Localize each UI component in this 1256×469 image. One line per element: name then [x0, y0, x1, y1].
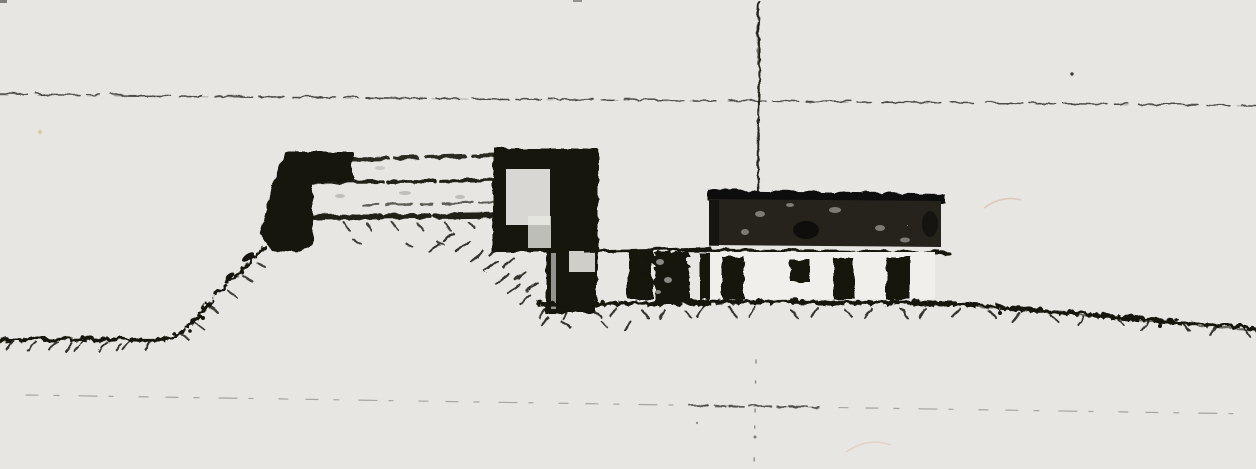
door-opening-3 [886, 256, 908, 298]
yellow-speck [38, 130, 42, 134]
roof-dark-edge-right [922, 211, 938, 237]
building-baseline [686, 299, 950, 301]
roof-dark-blob [793, 221, 819, 239]
scan-canvas [0, 0, 1256, 469]
entablature-second-line [312, 179, 492, 181]
right-building [686, 189, 950, 316]
door-opening-1 [721, 256, 743, 298]
tower-white-square [528, 216, 551, 248]
middle-baseline [536, 301, 706, 302]
entablature-base-line [312, 214, 520, 216]
door-opening-2 [832, 256, 853, 298]
tower-base-notch [569, 251, 595, 272]
roof-dark-edge-left [709, 200, 719, 246]
window-opening [789, 259, 808, 281]
left-ground-line [0, 337, 170, 338]
scanned-drawing-page [0, 0, 1256, 469]
paper-grain-texture [0, 0, 1256, 469]
